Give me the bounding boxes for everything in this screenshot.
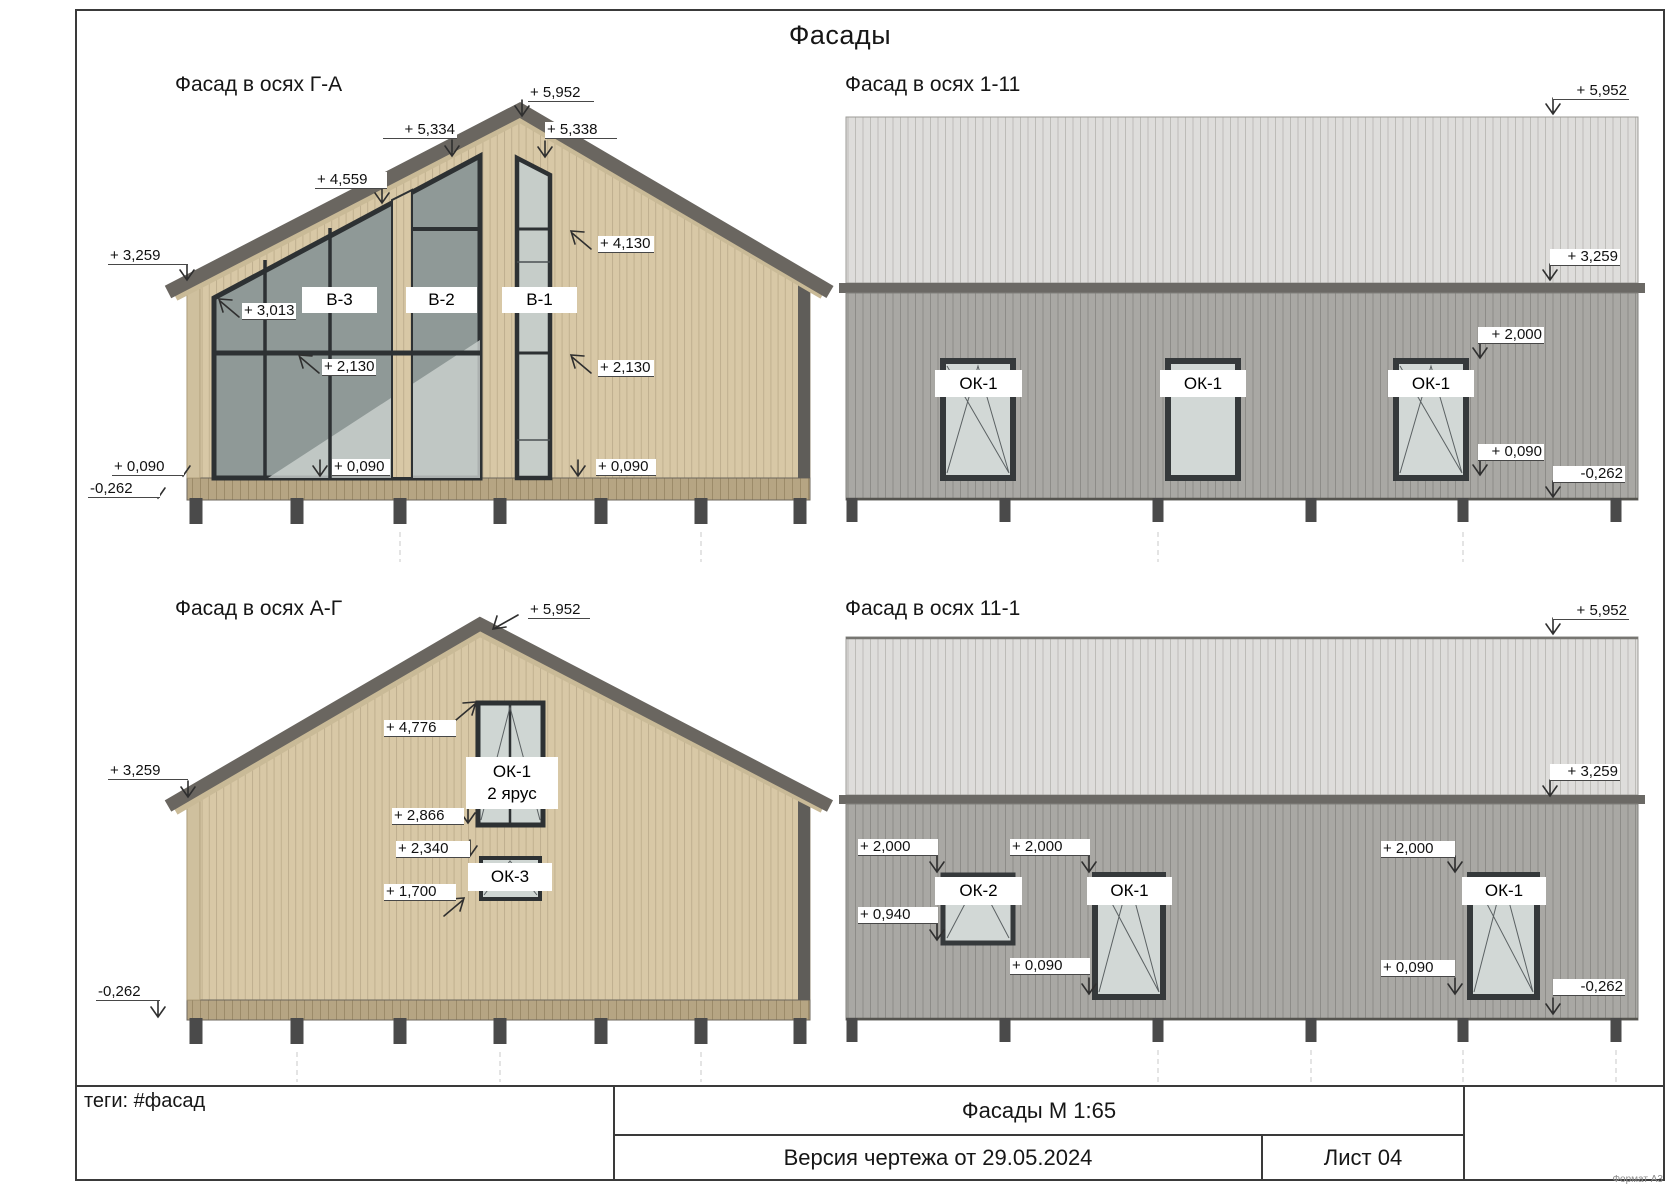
dim-level: + 5,334 xyxy=(383,122,457,139)
window-tag-ok1: ОК-1 xyxy=(1388,370,1474,397)
window-tag-ok1: ОК-1 xyxy=(1160,370,1246,397)
dim-level: -0,262 xyxy=(96,984,160,1001)
dim-level: + 0,090 xyxy=(1381,960,1455,977)
window-tag-b1: В-1 xyxy=(502,287,577,313)
dim-level: + 2,000 xyxy=(858,839,938,856)
window-tag-ok1: ОК-1 xyxy=(1462,877,1546,905)
eave-bar xyxy=(839,283,1645,293)
window-tag-ok1: ОК-1 xyxy=(1087,877,1172,905)
window-tag-ok2: ОК-2 xyxy=(935,877,1022,905)
window-tag-ok1-2yarus: ОК-1 2 ярус xyxy=(466,757,558,809)
dim-level: + 4,559 xyxy=(315,172,387,189)
drawing-sheet: Фасады Фасад в осях Г-А Фасад в осях 1-1… xyxy=(0,0,1680,1187)
dim-level: + 2,130 xyxy=(322,359,376,376)
dim-level: + 0,090 xyxy=(596,459,656,476)
facade-ag-drawing xyxy=(168,624,830,1020)
dim-level: + 2,130 xyxy=(598,360,654,377)
dim-level: + 4,130 xyxy=(598,236,654,253)
dim-level: + 2,000 xyxy=(1010,839,1090,856)
tags-note: теги: #фасад xyxy=(84,1090,205,1113)
facade-ga-title: Фасад в осях Г-А xyxy=(175,73,342,97)
window-tag-line2: 2 ярус xyxy=(487,783,536,805)
dim-level: -0,262 xyxy=(1553,979,1625,996)
format-note: Формат А3 xyxy=(1545,1174,1663,1185)
dim-level: + 5,952 xyxy=(1553,83,1629,100)
dim-level: -0,262 xyxy=(88,481,160,498)
dim-level: + 2,340 xyxy=(396,841,470,858)
window-tag-b3: В-3 xyxy=(302,287,377,313)
window-b1 xyxy=(517,158,550,478)
facade-11-1-title: Фасад в осях 11-1 xyxy=(845,597,1020,621)
dim-level: + 4,776 xyxy=(384,720,456,737)
roof-plane xyxy=(846,637,1638,795)
facade-11-1-drawing xyxy=(839,637,1645,1020)
dim-level: + 5,952 xyxy=(528,602,590,619)
titleblock-name: Фасады М 1:65 xyxy=(614,1086,1464,1135)
dim-level: + 2,000 xyxy=(1381,841,1455,858)
dim-level: + 0,090 xyxy=(1010,958,1090,975)
titleblock-version: Версия чертежа от 29.05.2024 xyxy=(614,1135,1262,1180)
dim-level: + 2,866 xyxy=(392,808,464,825)
window-tag-b2: В-2 xyxy=(406,287,477,313)
dim-level: + 3,259 xyxy=(108,763,188,780)
eave-bar xyxy=(839,795,1645,804)
window-tag-line1: ОК-1 xyxy=(493,761,531,783)
dim-level: + 5,338 xyxy=(545,122,617,139)
dim-level: + 3,013 xyxy=(242,303,296,320)
dim-level: + 3,259 xyxy=(108,248,188,265)
dim-level: + 2,000 xyxy=(1478,327,1544,344)
dim-level: + 0,940 xyxy=(858,907,938,924)
dim-level: + 0,090 xyxy=(1478,444,1544,461)
titleblock-sheet-number: Лист 04 xyxy=(1262,1135,1464,1180)
dim-level: + 1,700 xyxy=(384,884,456,901)
dim-level: + 5,952 xyxy=(528,85,594,102)
facade-drawings-canvas xyxy=(0,0,1680,1187)
facade-ag-title: Фасад в осях А-Г xyxy=(175,597,342,621)
dim-level: + 3,259 xyxy=(1550,249,1620,266)
dim-level: + 0,090 xyxy=(332,459,390,476)
window-tag-ok1: ОК-1 xyxy=(935,370,1022,397)
facade-1-11-title: Фасад в осях 1-11 xyxy=(845,73,1020,97)
sheet-title: Фасады xyxy=(600,20,1080,51)
dim-level: + 0,090 xyxy=(112,459,184,476)
dim-level: + 3,259 xyxy=(1550,764,1620,781)
dim-level: + 5,952 xyxy=(1553,603,1629,620)
roof-plane xyxy=(846,117,1638,283)
window-tag-ok3: ОК-3 xyxy=(468,863,552,891)
dim-level: -0,262 xyxy=(1553,466,1625,483)
